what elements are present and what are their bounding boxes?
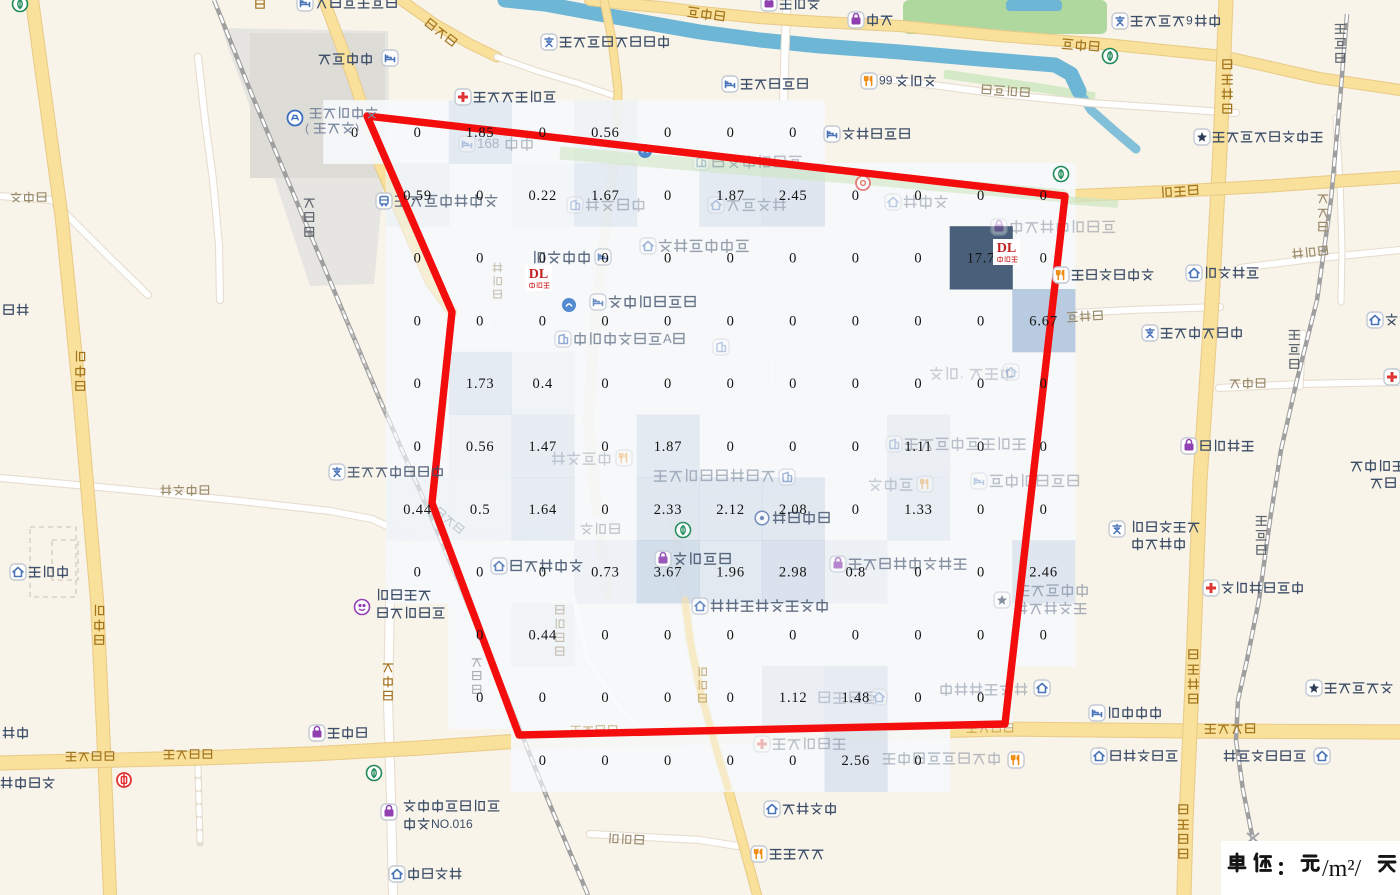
svg-text:0: 0 <box>476 690 484 706</box>
svg-text:0: 0 <box>977 439 985 455</box>
svg-text:1.87: 1.87 <box>716 188 745 204</box>
svg-text:0: 0 <box>414 376 422 392</box>
svg-text:0.8: 0.8 <box>846 565 867 581</box>
svg-text:0: 0 <box>476 251 484 267</box>
svg-text:17.7: 17.7 <box>967 251 996 267</box>
svg-text:0: 0 <box>1040 627 1048 643</box>
svg-text:0: 0 <box>977 502 985 518</box>
svg-text:0.56: 0.56 <box>466 439 495 455</box>
svg-text:3.67: 3.67 <box>654 565 683 581</box>
svg-text:0: 0 <box>476 313 484 329</box>
svg-text:6.67: 6.67 <box>1029 313 1058 329</box>
svg-text:0: 0 <box>414 313 422 329</box>
svg-text:9: 9 <box>1186 14 1193 28</box>
svg-text:.: . <box>960 366 964 381</box>
svg-text:1.12: 1.12 <box>779 690 808 706</box>
svg-text:0: 0 <box>914 565 922 581</box>
svg-text:0: 0 <box>1040 376 1048 392</box>
svg-text:0: 0 <box>414 251 422 267</box>
svg-text:0: 0 <box>789 376 797 392</box>
svg-text:0: 0 <box>664 125 672 141</box>
svg-text:0: 0 <box>914 251 922 267</box>
svg-text:2.33: 2.33 <box>654 502 683 518</box>
svg-text:0: 0 <box>977 188 985 204</box>
svg-text:0: 0 <box>539 753 547 769</box>
svg-text:0: 0 <box>789 313 797 329</box>
svg-text:0: 0 <box>914 627 922 643</box>
svg-text:A: A <box>663 331 672 346</box>
svg-text:2.46: 2.46 <box>1029 565 1058 581</box>
svg-text:0: 0 <box>476 627 484 643</box>
svg-text:0: 0 <box>727 627 735 643</box>
svg-text:1.67: 1.67 <box>591 188 620 204</box>
svg-text:0: 0 <box>727 439 735 455</box>
svg-text:0: 0 <box>852 502 860 518</box>
svg-text:0: 0 <box>601 627 609 643</box>
svg-text:0: 0 <box>914 753 922 769</box>
svg-text:0: 0 <box>977 627 985 643</box>
svg-text:0: 0 <box>852 251 860 267</box>
svg-text:0: 0 <box>727 753 735 769</box>
svg-text:0: 0 <box>1040 502 1048 518</box>
svg-text:0: 0 <box>664 188 672 204</box>
svg-text:0.44: 0.44 <box>529 627 558 643</box>
svg-text:1.48: 1.48 <box>842 690 871 706</box>
svg-text:0: 0 <box>601 690 609 706</box>
svg-text:(: ( <box>305 121 309 135</box>
svg-text:0: 0 <box>664 627 672 643</box>
svg-text:0: 0 <box>539 251 547 267</box>
svg-text:0: 0 <box>664 313 672 329</box>
svg-text:2.45: 2.45 <box>779 188 808 204</box>
svg-text:0.73: 0.73 <box>591 565 620 581</box>
svg-text:1.33: 1.33 <box>904 502 933 518</box>
svg-text:0: 0 <box>852 376 860 392</box>
svg-text:0.5: 0.5 <box>470 502 491 518</box>
svg-text:0: 0 <box>601 439 609 455</box>
svg-text:DL: DL <box>529 267 548 282</box>
svg-text:0: 0 <box>476 565 484 581</box>
svg-text:0: 0 <box>852 313 860 329</box>
svg-text:1.11: 1.11 <box>904 439 932 455</box>
svg-text:99: 99 <box>879 74 893 88</box>
svg-text:0: 0 <box>852 627 860 643</box>
svg-text:0: 0 <box>539 125 547 141</box>
svg-text:0: 0 <box>852 188 860 204</box>
svg-text:1.96: 1.96 <box>716 565 745 581</box>
svg-text:0: 0 <box>601 251 609 267</box>
svg-text:0: 0 <box>789 251 797 267</box>
svg-text:1.64: 1.64 <box>529 502 558 518</box>
svg-text:0: 0 <box>476 188 484 204</box>
svg-text:0: 0 <box>601 313 609 329</box>
svg-text:0: 0 <box>539 565 547 581</box>
svg-text:0: 0 <box>664 376 672 392</box>
svg-text:0: 0 <box>1040 439 1048 455</box>
svg-text:0: 0 <box>852 439 860 455</box>
svg-text:0: 0 <box>914 313 922 329</box>
svg-text:0: 0 <box>727 376 735 392</box>
svg-text:0: 0 <box>1040 188 1048 204</box>
svg-text:0: 0 <box>727 251 735 267</box>
svg-text:0: 0 <box>664 251 672 267</box>
svg-text:2.98: 2.98 <box>779 565 808 581</box>
svg-text:0: 0 <box>727 313 735 329</box>
svg-text:0: 0 <box>789 627 797 643</box>
svg-text:1.73: 1.73 <box>466 376 495 392</box>
svg-text:0: 0 <box>601 376 609 392</box>
svg-text:0.44: 0.44 <box>403 502 432 518</box>
svg-text:/m²/: /m²/ <box>1322 856 1362 882</box>
svg-text:1.87: 1.87 <box>654 439 683 455</box>
svg-text:0.22: 0.22 <box>529 188 558 204</box>
svg-text:2.12: 2.12 <box>716 502 745 518</box>
svg-text:0: 0 <box>664 753 672 769</box>
svg-text:2.56: 2.56 <box>842 753 871 769</box>
svg-text:0: 0 <box>539 690 547 706</box>
svg-text:0: 0 <box>914 376 922 392</box>
svg-text:): ) <box>355 121 359 135</box>
svg-text:0.59: 0.59 <box>403 188 432 204</box>
svg-text:0: 0 <box>539 313 547 329</box>
svg-text:0: 0 <box>977 690 985 706</box>
svg-text:0: 0 <box>914 690 922 706</box>
svg-text:DL: DL <box>997 241 1016 256</box>
svg-text:0: 0 <box>977 313 985 329</box>
svg-text:0: 0 <box>789 439 797 455</box>
svg-text:0: 0 <box>914 188 922 204</box>
svg-text:0: 0 <box>1040 251 1048 267</box>
svg-text:0: 0 <box>789 753 797 769</box>
svg-text:0: 0 <box>601 753 609 769</box>
svg-text:0: 0 <box>977 376 985 392</box>
svg-text:NO.016: NO.016 <box>431 817 473 831</box>
svg-text:0.56: 0.56 <box>591 125 620 141</box>
svg-text:0: 0 <box>601 502 609 518</box>
svg-text:0: 0 <box>414 565 422 581</box>
svg-text:0: 0 <box>977 565 985 581</box>
svg-text:0: 0 <box>727 125 735 141</box>
svg-text:0: 0 <box>414 439 422 455</box>
svg-text:0: 0 <box>789 125 797 141</box>
svg-text:1.47: 1.47 <box>529 439 558 455</box>
svg-text:0: 0 <box>414 125 422 141</box>
svg-text:0: 0 <box>664 690 672 706</box>
svg-text:0.4: 0.4 <box>533 376 554 392</box>
svg-text:0: 0 <box>727 690 735 706</box>
svg-text:2.08: 2.08 <box>779 502 808 518</box>
svg-text:1.85: 1.85 <box>466 125 495 141</box>
